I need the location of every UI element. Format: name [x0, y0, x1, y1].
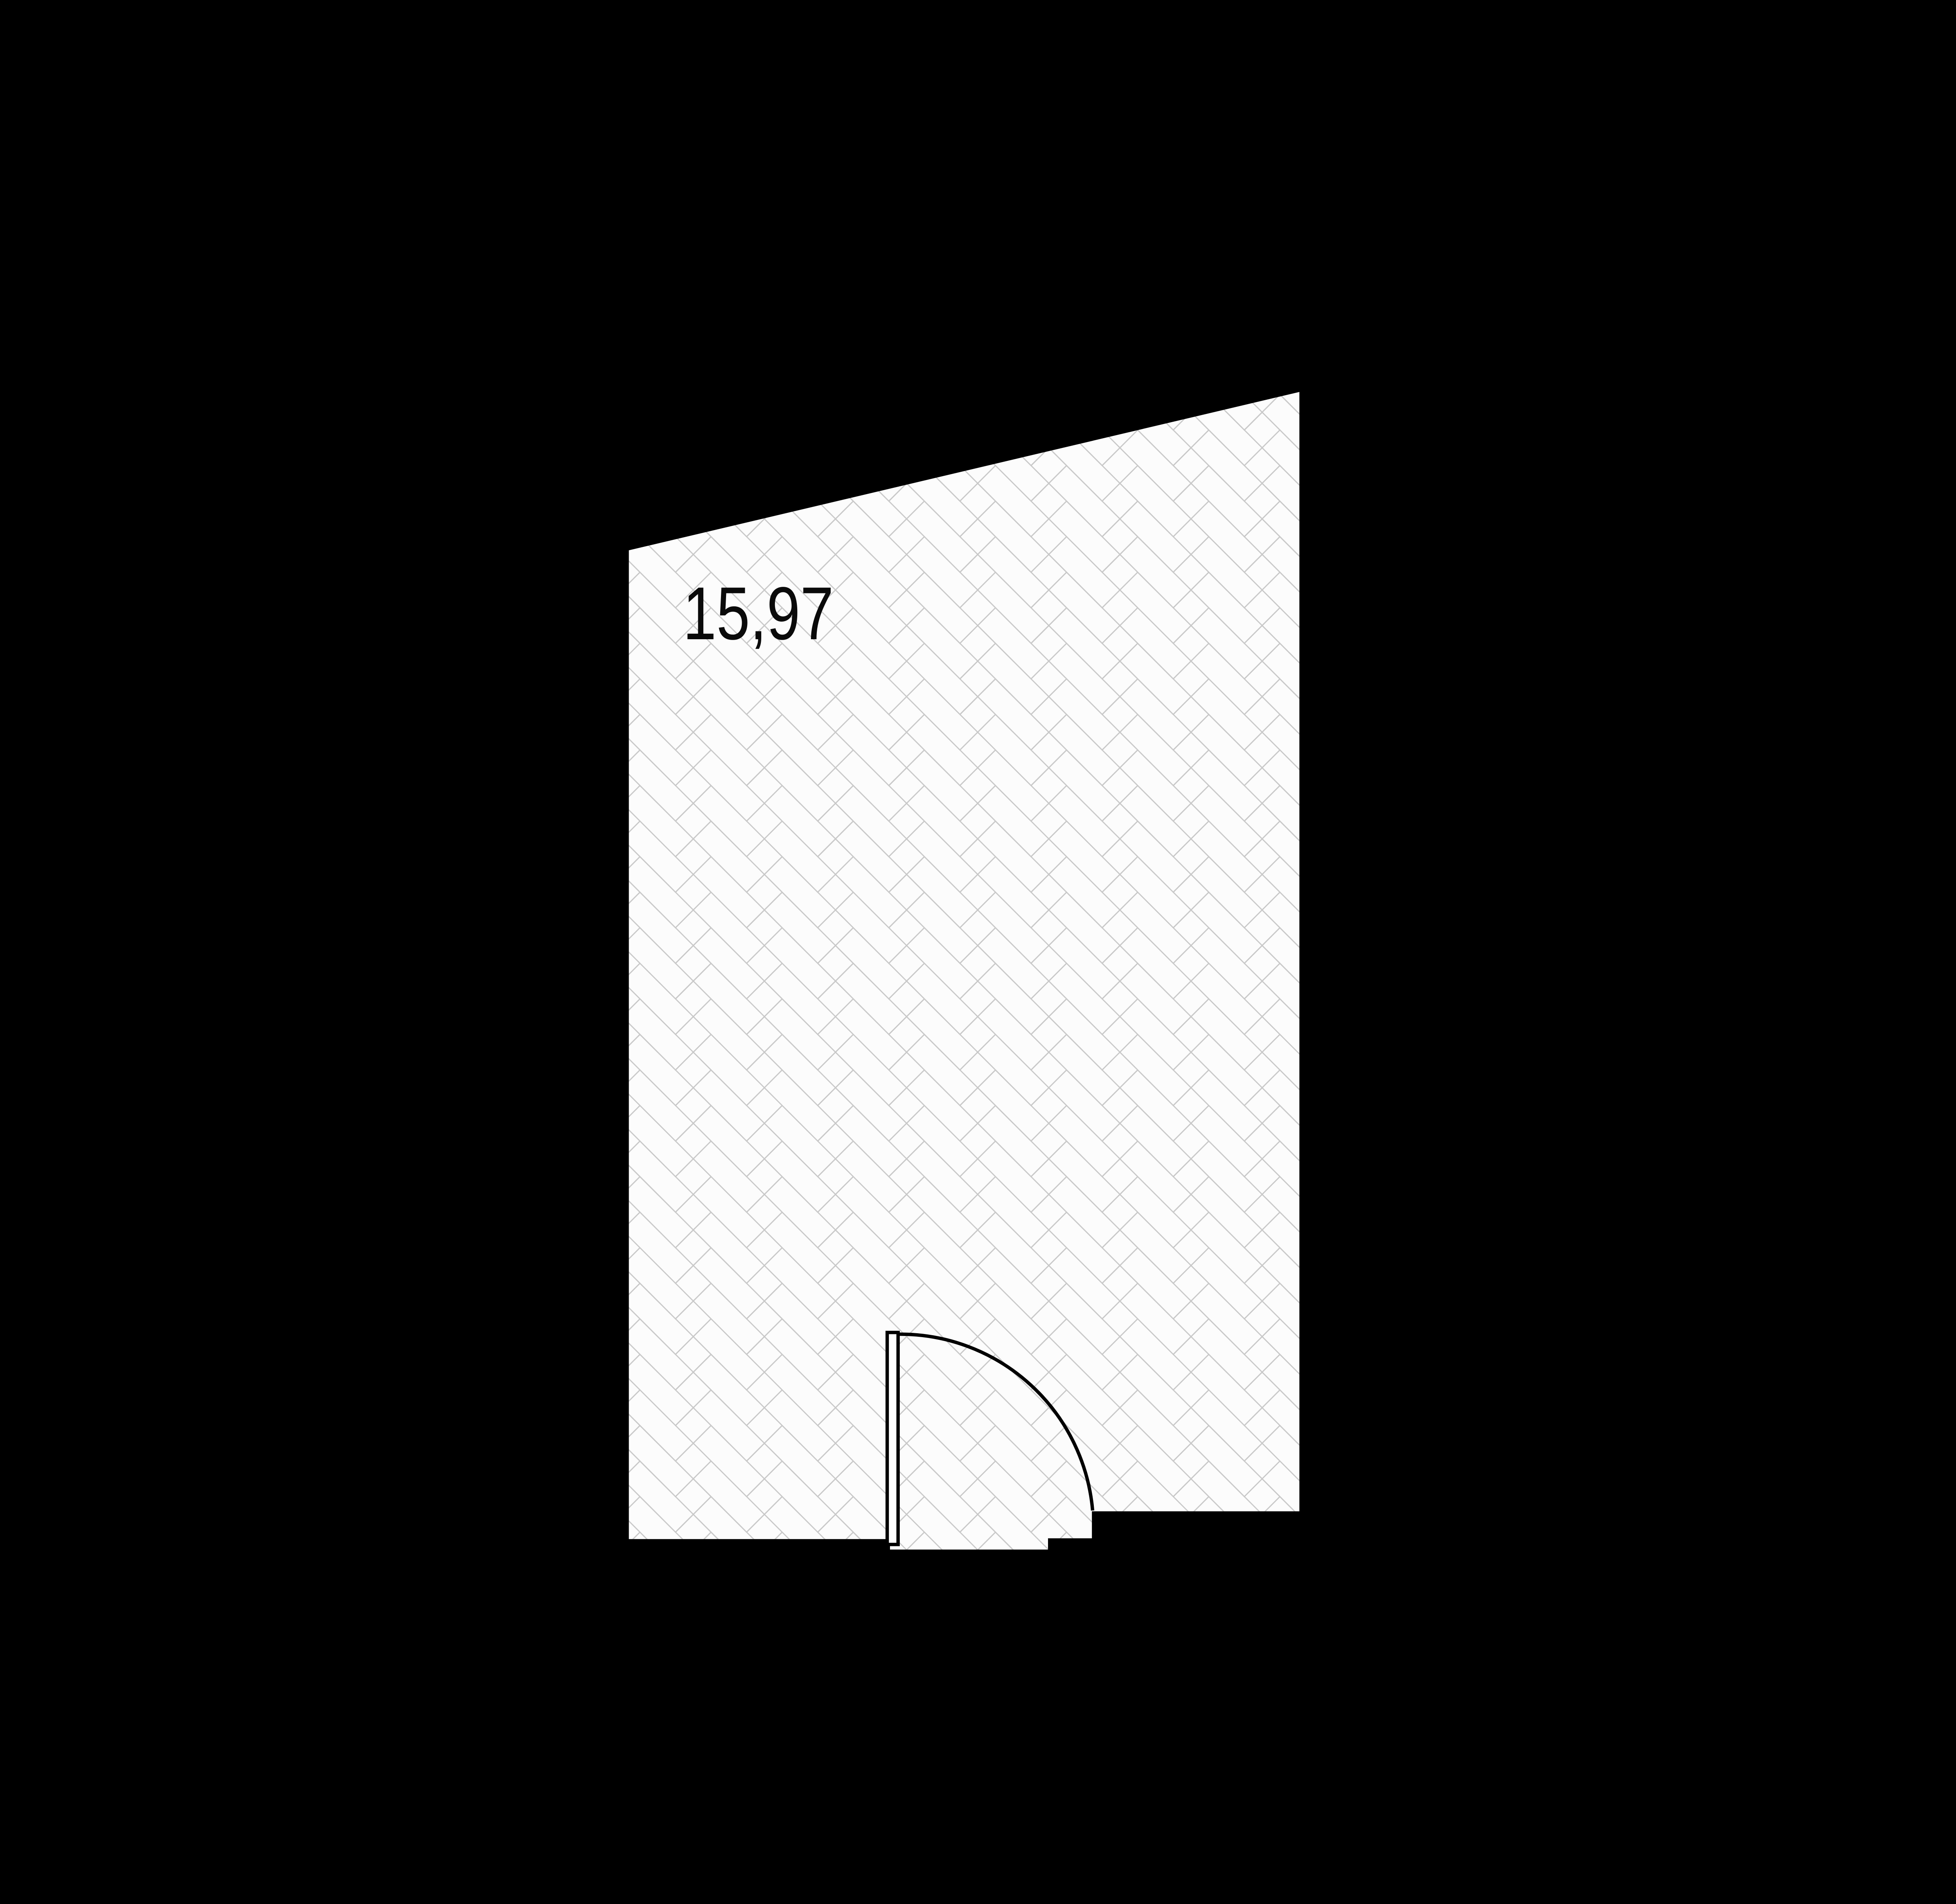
floor-plan-canvas: 15,97: [0, 0, 1956, 1904]
room-area-label: 15,97: [683, 571, 834, 655]
door-leaf: [887, 1332, 898, 1544]
floor-plan-image: 15,97: [0, 0, 1956, 1904]
room-floor-parquet: [629, 392, 1300, 1550]
